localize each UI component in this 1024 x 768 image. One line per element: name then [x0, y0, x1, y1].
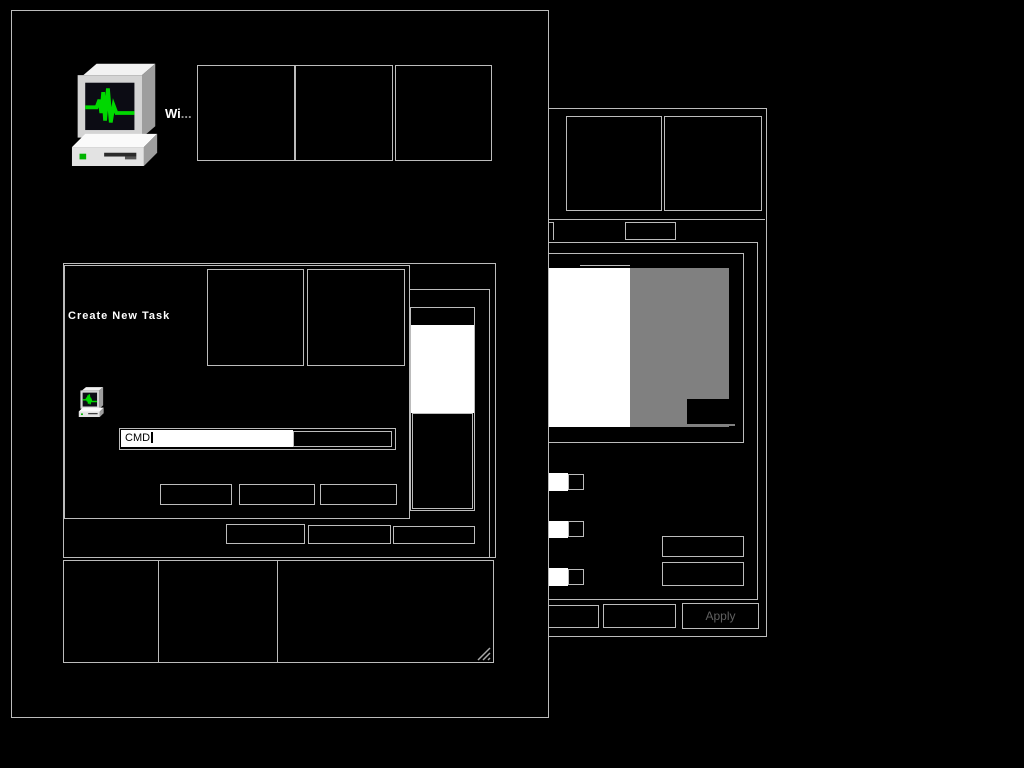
- text-cursor: [151, 432, 153, 443]
- properties-titlebar-button-2[interactable]: [664, 116, 762, 211]
- status-pane-3: [278, 561, 493, 662]
- titlebar-divider: [547, 219, 765, 220]
- option-stepper-3[interactable]: [568, 569, 584, 585]
- task-name-input[interactable]: CMD: [121, 430, 293, 447]
- option-value-field-3[interactable]: [547, 568, 568, 586]
- taskmanager-titlebar-button-1[interactable]: [197, 65, 295, 161]
- status-pane-1: [64, 561, 159, 662]
- apply-button[interactable]: Apply: [682, 603, 759, 629]
- option-value-field-2[interactable]: [547, 521, 568, 538]
- properties-bottom-button-2[interactable]: [603, 604, 676, 628]
- option-stepper-2[interactable]: [568, 521, 584, 537]
- scrollbar-thumb[interactable]: [411, 325, 474, 413]
- dialog-titlebar-button-2[interactable]: [307, 269, 405, 366]
- create-new-task-dialog: Create New Task CMD: [64, 265, 410, 519]
- taskmanager-action-button-1[interactable]: [226, 524, 305, 544]
- properties-side-button-2[interactable]: [662, 562, 744, 586]
- task-name-input-value: CMD: [125, 432, 150, 444]
- taskmanager-action-button-3[interactable]: [393, 526, 475, 544]
- window-title-ellipsis: ...: [181, 106, 192, 121]
- task-manager-computer-icon[interactable]: [68, 60, 163, 166]
- status-bar: [63, 560, 494, 663]
- window-title: Wi...: [165, 106, 192, 121]
- desktop: { "colors": { "desktop_bg": "#000000", "…: [0, 0, 1024, 768]
- window-title-text: Wi: [165, 106, 181, 121]
- task-combo-box: CMD: [119, 428, 396, 450]
- tab-2[interactable]: [625, 222, 676, 240]
- preview-header-divider: [580, 265, 630, 266]
- properties-side-button-1[interactable]: [662, 536, 744, 557]
- properties-window: Apply: [546, 108, 767, 637]
- taskmanager-titlebar-button-3[interactable]: [395, 65, 492, 161]
- list-top-edge: [410, 289, 489, 290]
- dialog-button-2[interactable]: [239, 484, 315, 505]
- dialog-title: Create New Task: [68, 310, 170, 322]
- combo-dropdown-button[interactable]: [293, 431, 392, 447]
- properties-bottom-button-1[interactable]: [547, 605, 599, 628]
- preview-white-area: [548, 268, 630, 427]
- taskmanager-action-button-2[interactable]: [308, 525, 391, 544]
- resize-grip[interactable]: [475, 645, 491, 661]
- dialog-titlebar-button-1[interactable]: [207, 269, 304, 366]
- taskmanager-titlebar-button-2[interactable]: [295, 65, 393, 161]
- dialog-task-manager-icon: [78, 386, 105, 417]
- option-value-field-1[interactable]: [547, 473, 568, 491]
- dialog-button-1[interactable]: [160, 484, 232, 505]
- option-stepper-1[interactable]: [568, 474, 584, 490]
- dialog-button-3[interactable]: [320, 484, 397, 505]
- preview-black-box: [687, 399, 740, 424]
- scrollbar-track[interactable]: [412, 413, 473, 509]
- status-pane-2: [159, 561, 278, 662]
- properties-titlebar-button-1[interactable]: [566, 116, 662, 211]
- list-right-edge: [489, 289, 490, 557]
